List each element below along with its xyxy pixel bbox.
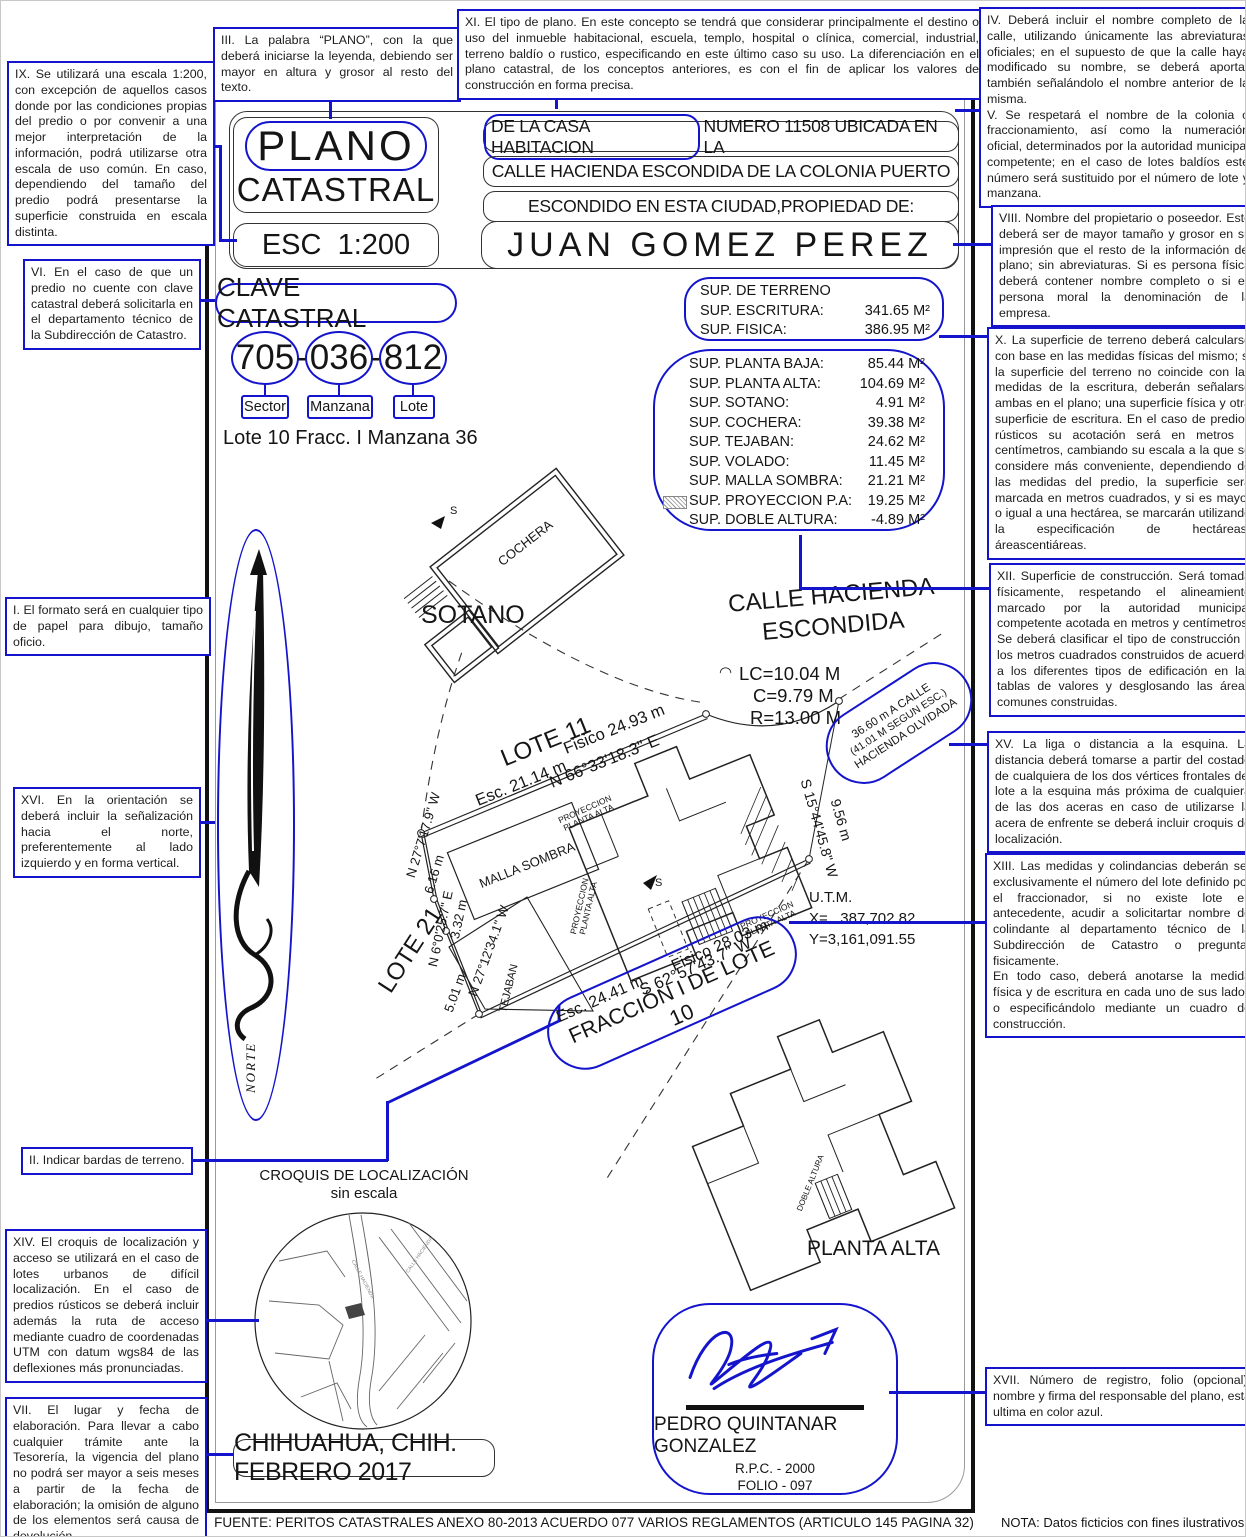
hatch-swatch-icon	[663, 496, 687, 509]
connector-viii	[953, 243, 993, 246]
clave-lote-stub	[412, 385, 414, 395]
annotation-xiii-p1: XIII. Las medidas y colindancias deberán…	[993, 859, 1246, 969]
annotation-box-iv-v: IV. Deberá incluir el nombre completo de…	[979, 7, 1246, 208]
table-row: SUP. TEJABAN:24.62 M²	[689, 433, 925, 453]
table-row: SUP. MALLA SOMBRA:21.21 M²	[689, 472, 925, 492]
address-line-1-rest: NUMERO 11508 UBICADA EN LA	[704, 116, 958, 158]
catastral-word: CATASTRAL	[237, 171, 435, 209]
page: IX. Se utilizará una escala 1:200, con e…	[0, 0, 1246, 1537]
connector-xiii	[789, 921, 987, 924]
sector-label: Sector	[241, 395, 289, 419]
clave-catastral-title: CLAVE CATASTRAL	[215, 283, 457, 323]
date-location-box: CHIHUAHUA, CHIH. FEBRERO 2017	[233, 1439, 495, 1477]
address-type-highlight: DE LA CASA HABITACION	[484, 114, 700, 160]
signature-divider	[686, 1405, 864, 1410]
annotation-box-x: X. La superficie de terreno deberá calcu…	[987, 327, 1246, 560]
connector-xii-h	[799, 587, 991, 590]
connector-ix-v	[219, 145, 222, 241]
annotation-box-vi: VI. En el caso de que un predio no cuent…	[23, 259, 201, 350]
clave-manzana-stub	[338, 385, 340, 395]
annotation-box-xiii: XIII. Las medidas y colindancias deberán…	[985, 853, 1246, 1038]
north-arrow-frame	[217, 529, 295, 1121]
clave-sector-stub	[264, 385, 266, 395]
table-row: SUP. FISICA:386.95 M²	[700, 321, 930, 341]
table-row: SUP. ESCRITURA:341.65 M²	[700, 302, 930, 322]
connector-ii-h	[177, 1159, 388, 1162]
address-line-1: DE LA CASA HABITACION NUMERO 11508 UBICA…	[483, 121, 959, 152]
connector-ix-h2	[219, 239, 237, 242]
annotation-box-i: I. El formato será en cualquier tipo de …	[5, 597, 211, 656]
annotation-box-xiv: XIV. El croquis de localización y acceso…	[5, 1229, 207, 1383]
annotation-box-xi: XI. El tipo de plano. En este concepto s…	[457, 9, 987, 100]
annotation-box-viii: VIII. Nombre del propietario o poseedor.…	[991, 205, 1246, 327]
clave-sector-number: 705	[231, 331, 299, 385]
owner-name-box: JUAN GOMEZ PEREZ	[481, 221, 959, 269]
croquis-subtitle: sin escala	[249, 1185, 479, 1202]
table-row: SUP. PLANTA BAJA:85.44 M²	[689, 355, 925, 375]
annotation-box-xvii: XVII. Número de registro, folio (opciona…	[985, 1367, 1246, 1426]
norte-label: NORTE	[243, 1042, 259, 1093]
manzana-label: Manzana	[307, 395, 373, 419]
signature-name: PEDRO QUINTANAR GONZALEZ	[654, 1414, 896, 1458]
clave-lote-number: 812	[379, 331, 447, 385]
arc-symbol-icon: ◠	[719, 663, 732, 681]
sotano-label: SOTANO	[421, 601, 525, 630]
sup-terreno-table: SUP. DE TERRENO SUP. ESCRITURA:341.65 M²…	[684, 277, 944, 341]
stair-s-label-sotano: S	[450, 505, 457, 517]
annotation-box-xvi: XVI. En la orientación se deberá incluir…	[13, 787, 201, 878]
table-row: SUP. PROYECCION P.A:19.25 M²	[689, 492, 925, 512]
plan-sheet: PLANO CATASTRAL DE LA CASA HABITACION NU…	[205, 87, 975, 1513]
table-row: SUP. PLANTA ALTA:104.69 M²	[689, 375, 925, 395]
connector-ii-v	[386, 1101, 389, 1161]
plano-word: PLANO	[245, 121, 426, 171]
annotation-box-xii: XII. Superficie de construcción. Será to…	[989, 563, 1246, 717]
address-line-3: ESCONDIDO EN ESTA CIUDAD,PROPIEDAD DE:	[483, 191, 959, 222]
signature-folio: FOLIO - 097	[737, 1478, 812, 1493]
annotation-box-xv: XV. La liga o distancia a la esquina. La…	[987, 731, 1246, 853]
table-row: SUP. COCHERA:39.38 M²	[689, 414, 925, 434]
table-row: SUP. VOLADO:11.45 M²	[689, 453, 925, 473]
croquis-title: CROQUIS DE LOCALIZACIÓN	[249, 1167, 479, 1184]
connector-xv	[949, 743, 989, 746]
table-row: SUP. SOTANO:4.91 M²	[689, 394, 925, 414]
utm-y-value: Y=3,161,091.55	[809, 929, 915, 950]
plano-catastral-box: PLANO CATASTRAL	[233, 117, 439, 213]
annotation-xiii-p2: En todo caso, deberá anotarse la medida …	[993, 969, 1246, 1032]
annotation-box-iii: III. La palabra “PLANO”, con la que debe…	[213, 27, 461, 102]
table-row: SUP. DOBLE ALTURA:-4.89 M²	[689, 511, 925, 531]
annotation-v-text: V. Se respetará el nombre de la colonia …	[987, 108, 1246, 203]
utm-x-value: X= 387,702.82	[809, 908, 915, 929]
sup-terreno-title: SUP. DE TERRENO	[700, 282, 930, 302]
north-arrow-icon	[219, 531, 292, 1118]
sup-construccion-table: SUP. PLANTA BAJA:85.44 M² SUP. PLANTA AL…	[653, 349, 945, 531]
escala-box: ESC 1:200	[233, 223, 439, 267]
lote-label: Lote	[393, 395, 435, 419]
annotation-box-ix: IX. Se utilizará una escala 1:200, con e…	[7, 61, 215, 246]
utm-title: U.T.M.	[809, 887, 915, 908]
annotation-box-vii: VII. El lugar y fecha de elaboración. Pa…	[5, 1397, 207, 1537]
curve-lc-label: LC=10.04 M	[739, 663, 840, 685]
signature-block: PEDRO QUINTANAR GONZALEZ R.P.C. - 2000 F…	[652, 1303, 898, 1495]
address-line-2: CALLE HACIENDA ESCONDIDA DE LA COLONIA P…	[483, 156, 959, 187]
utm-block: U.T.M. X= 387,702.82 Y=3,161,091.55	[809, 887, 915, 950]
footer-note: NOTA: Datos ficticios con fines ilustrat…	[1001, 1515, 1246, 1530]
annotation-iv-text: IV. Deberá incluir el nombre completo de…	[987, 13, 1246, 108]
signature-rpc: R.P.C. - 2000	[735, 1461, 815, 1476]
lote-fracc-line: Lote 10 Fracc. I Manzana 36	[223, 427, 478, 450]
stair-s-label-casa: S	[655, 877, 662, 889]
planta-alta-label: PLANTA ALTA	[807, 1237, 940, 1261]
signature-icon	[665, 1311, 885, 1403]
connector-xii-v	[799, 535, 802, 589]
clave-manzana-number: 036	[305, 331, 373, 385]
footer-source: FUENTE: PERITOS CATASTRALES ANEXO 80-201…	[209, 1515, 979, 1530]
connector-xvii	[889, 1391, 987, 1394]
curve-c-label: C=9.79 M	[753, 685, 834, 707]
curve-r-label: R=13.00 M	[750, 707, 841, 729]
connector-x	[939, 335, 989, 338]
connector-iv-v	[955, 109, 981, 112]
annotation-box-ii: II. Indicar bardas de terreno.	[21, 1147, 193, 1175]
